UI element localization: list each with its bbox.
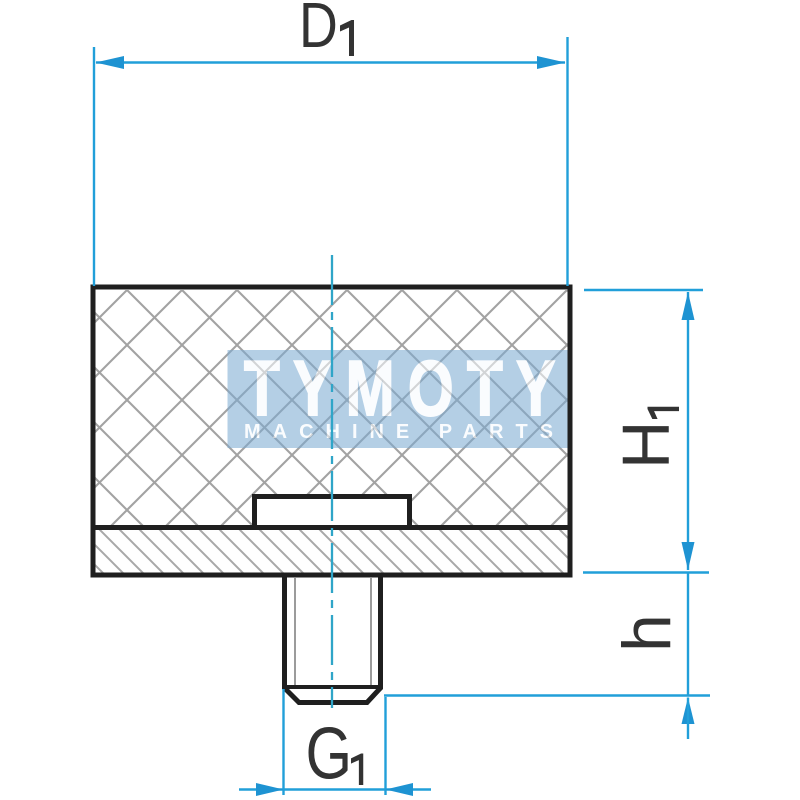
svg-text:H: H [609, 421, 684, 469]
svg-text:D: D [299, 0, 338, 61]
svg-text:TYMOTY: TYMOTY [244, 345, 569, 432]
svg-text:G: G [306, 714, 353, 795]
svg-text:h: h [609, 614, 685, 652]
